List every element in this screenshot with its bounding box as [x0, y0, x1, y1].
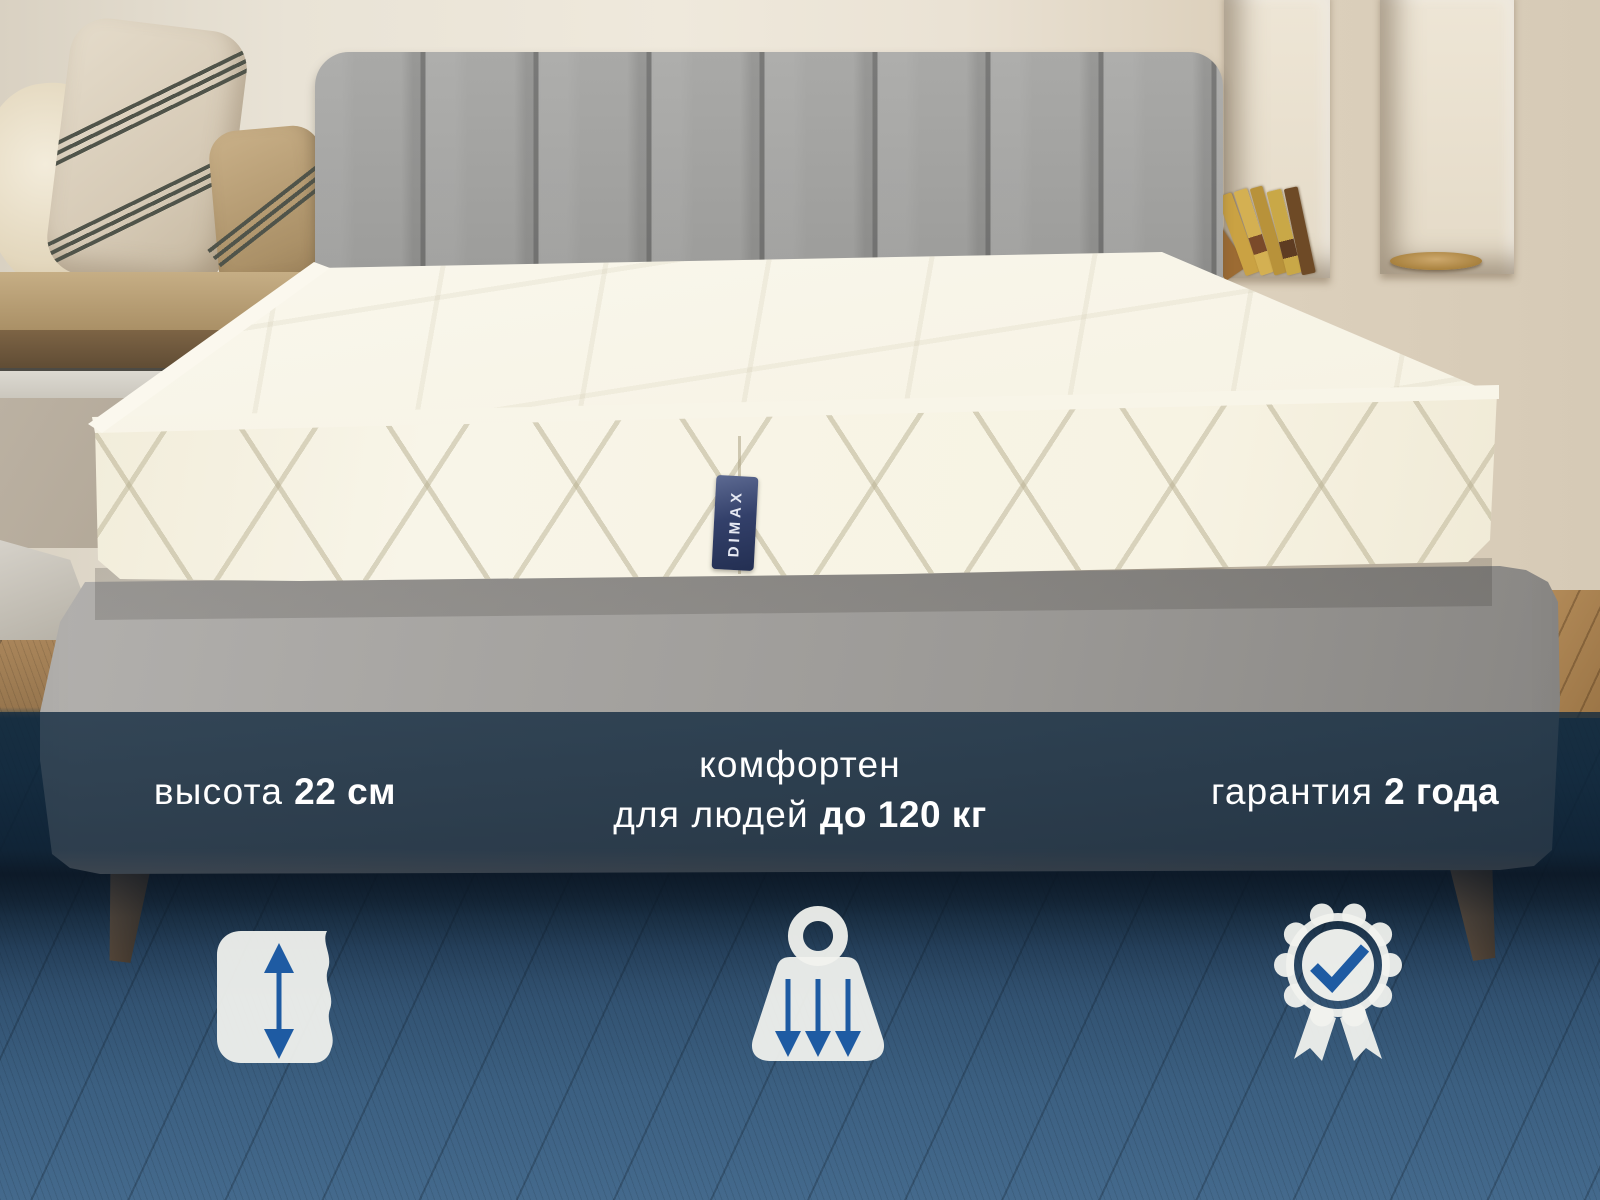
wall-niche-left — [1224, 0, 1330, 278]
height-value: 22 см — [294, 771, 396, 812]
height-label: высота — [154, 771, 283, 812]
product-photo-mattress: DIMAX высота22 см комфортен для людейдо … — [0, 0, 1600, 1200]
capacity-value: до 120 кг — [820, 794, 987, 835]
warranty-value: 2 года — [1384, 771, 1499, 812]
warranty-badge-icon — [1272, 901, 1404, 1063]
wood-slice-decor — [1390, 252, 1482, 270]
capacity-line1: комфортен — [560, 745, 1040, 785]
warranty-label: гарантия — [1211, 771, 1373, 812]
capacity-line2: для людейдо 120 кг — [560, 795, 1040, 835]
wall-niche-right — [1380, 0, 1514, 274]
feature-capacity-text: комфортен для людейдо 120 кг — [560, 745, 1040, 835]
feature-height-text: высота22 см — [95, 772, 455, 812]
brand-label-text: DIMAX — [725, 488, 746, 557]
brand-label: DIMAX — [712, 475, 759, 571]
weight-icon — [746, 903, 890, 1067]
mattress-height-icon — [217, 931, 342, 1063]
capacity-line2-label: для людей — [613, 794, 809, 835]
feature-warranty-text: гарантия2 года — [1165, 772, 1545, 812]
